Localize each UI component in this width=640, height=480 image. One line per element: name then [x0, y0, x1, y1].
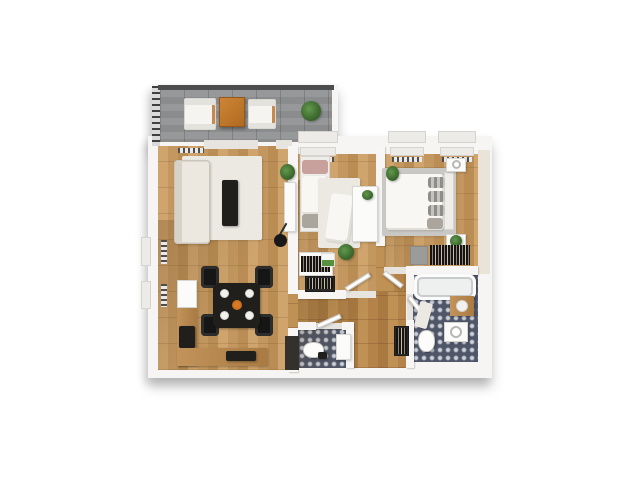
- desk-plant: [362, 190, 373, 200]
- balcony-lounger-2: [248, 99, 276, 129]
- bedroom2-books2: [307, 278, 333, 289]
- bedroom2-door-threshold: [346, 291, 376, 298]
- balcony-table: [219, 97, 245, 127]
- wall-hall-bath-upper: [406, 274, 414, 294]
- kitchen-cabinet: [177, 280, 197, 308]
- living-hall-opening: [288, 294, 298, 328]
- master-radiator1: [392, 157, 422, 162]
- master-corner-plant: [386, 166, 399, 181]
- wall-wc-top-left: [298, 322, 316, 330]
- left-radiator2: [161, 284, 167, 307]
- wardrobe-box: [410, 246, 428, 265]
- balcony-railing-left: [152, 86, 160, 146]
- wc-floor-item: [318, 352, 327, 359]
- living-top-radiator: [178, 148, 204, 153]
- bedroom2-floor-plant: [338, 244, 354, 260]
- plate-4: [245, 311, 254, 320]
- balcony-sliding-door-threshold: [204, 140, 258, 149]
- floor-lamp-head: [274, 234, 287, 247]
- master-pillow1: [428, 177, 445, 188]
- left-radiator1: [161, 240, 167, 264]
- master-window1-sill: [388, 131, 426, 143]
- bathroom-toilet: [418, 330, 435, 352]
- nightstand-decor: [452, 160, 461, 169]
- tv-console: [222, 180, 238, 226]
- left-window1-sill: [141, 237, 151, 266]
- living-plant: [280, 164, 295, 180]
- plate-2: [245, 289, 254, 298]
- wc-vanity: [336, 334, 351, 360]
- plate-1: [220, 289, 229, 298]
- balcony-plant: [301, 101, 321, 121]
- kitchen-sink: [226, 351, 256, 361]
- bedroom2-pillow-pink: [302, 160, 328, 174]
- master-window2-bench: [440, 147, 474, 156]
- plate-3: [220, 311, 229, 320]
- master-window2-sill: [438, 131, 476, 143]
- master-pillow4: [427, 218, 443, 229]
- fruit-bowl: [232, 300, 242, 310]
- sofa: [174, 160, 210, 244]
- master-headboard: [444, 172, 454, 230]
- washing-machine-door: [450, 326, 462, 338]
- master-window1-bench: [390, 147, 424, 156]
- bedroom2-window-sill: [298, 131, 338, 143]
- floor-plan: [0, 0, 640, 480]
- master-pillow2: [428, 191, 445, 202]
- balcony-lounger-1: [184, 98, 216, 130]
- master-pillow3: [428, 205, 445, 216]
- bedroom2-poster: [321, 253, 335, 267]
- bedroom2-window-bench: [300, 147, 336, 156]
- bathroom-sink: [456, 300, 468, 312]
- right-wall-accent: [478, 150, 490, 274]
- left-window2-sill: [141, 281, 151, 309]
- balcony-railing-top: [158, 85, 334, 90]
- hallway-rack-items: [396, 328, 407, 354]
- kitchen-oven: [179, 326, 195, 348]
- entry-door: [285, 336, 299, 370]
- wardrobe-clothes-rail: [430, 245, 470, 265]
